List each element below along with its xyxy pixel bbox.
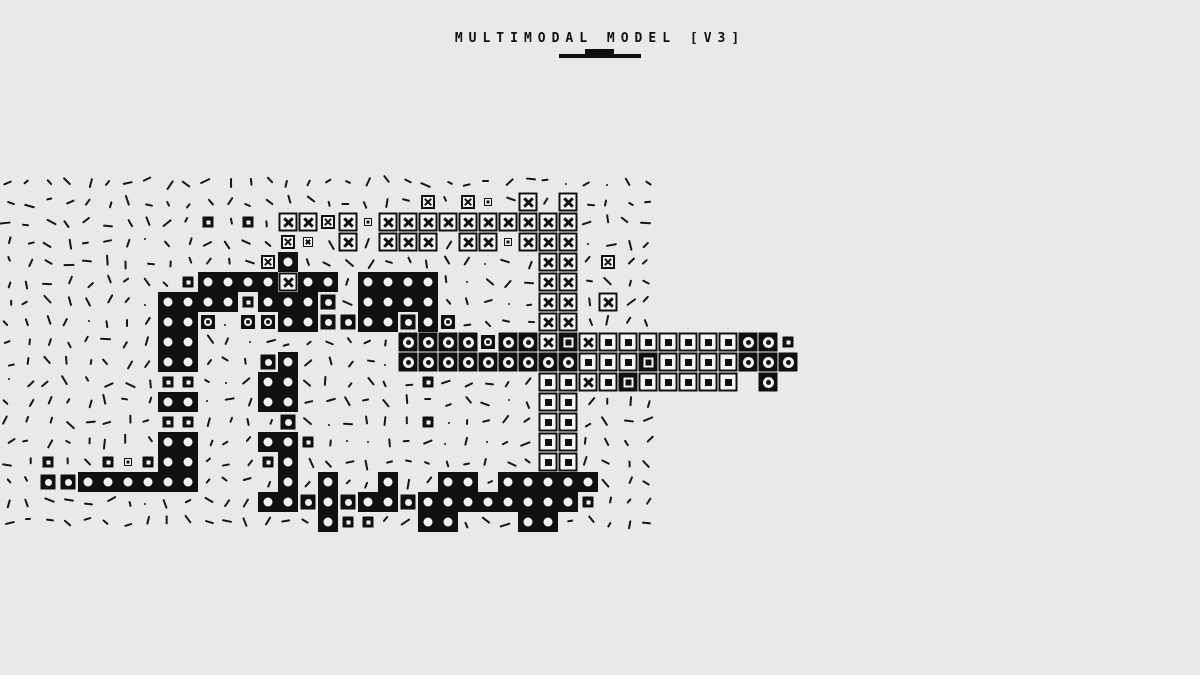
square-tile (719, 353, 738, 372)
dash-mark (265, 199, 274, 206)
dash-mark (142, 419, 150, 423)
dash-mark (103, 394, 107, 405)
dot-tile (178, 472, 198, 492)
dash-mark (85, 297, 92, 307)
dash-mark (202, 241, 212, 247)
dash-mark (326, 397, 336, 402)
dash-mark (582, 456, 587, 466)
dash-mark (507, 461, 517, 467)
dash-mark (227, 197, 234, 205)
dash-mark (24, 203, 35, 208)
dash-mark (621, 217, 630, 224)
dash-mark (365, 177, 371, 187)
dash-mark (7, 281, 11, 288)
square-tile (539, 413, 558, 432)
dash-mark (44, 497, 55, 503)
dash-mark (26, 357, 29, 365)
dash-mark (225, 382, 227, 384)
dash-mark (47, 315, 52, 325)
dash-mark (346, 460, 355, 464)
artwork-stage: MULTIMODAL MODEL [V3] (0, 0, 1200, 675)
dash-mark (465, 396, 473, 404)
x-mark-tile (559, 293, 578, 312)
x-mark-tile (559, 313, 578, 332)
dash-mark (329, 356, 333, 365)
dash-mark (245, 436, 251, 443)
mini-square-tile (183, 277, 194, 288)
pattern-canvas (0, 0, 1200, 675)
dash-mark (42, 283, 52, 285)
dash-mark (482, 419, 490, 423)
x-mark-tile (539, 213, 558, 232)
dash-mark (249, 341, 251, 343)
dash-mark (103, 438, 106, 449)
dash-mark (46, 219, 56, 226)
dash-mark (241, 239, 251, 245)
dash-mark (200, 178, 211, 184)
dash-mark (221, 356, 229, 362)
dot-tile (178, 292, 198, 312)
dash-mark (502, 319, 510, 323)
x-mark-tile (279, 213, 298, 232)
dash-mark (144, 304, 146, 306)
dash-mark (167, 180, 175, 190)
dash-mark (444, 275, 447, 283)
square-tile (539, 433, 558, 452)
dash-mark (46, 179, 52, 185)
dash-mark (345, 479, 351, 485)
ring-tile (499, 353, 518, 372)
micro-square-tile (484, 198, 492, 206)
dot-tile (378, 292, 398, 312)
dot-tile (378, 492, 398, 512)
dash-mark (101, 358, 108, 366)
dash-mark (629, 279, 633, 286)
square-tile (559, 433, 578, 452)
x-mark-tile (299, 213, 318, 232)
dash-mark (68, 296, 72, 306)
dash-mark (302, 379, 311, 387)
dash-mark (583, 437, 586, 446)
dash-mark (84, 502, 93, 505)
x-mark-tile-small (601, 255, 615, 269)
dash-mark (483, 458, 487, 466)
dash-mark (465, 418, 467, 424)
dash-mark (287, 194, 291, 203)
dash-mark (281, 519, 290, 522)
dash-mark (601, 479, 609, 488)
dash-mark (145, 203, 153, 207)
dash-mark (224, 337, 229, 345)
dash-mark (189, 237, 193, 245)
dash-mark (424, 398, 431, 400)
dot-tile (378, 472, 398, 492)
dash-mark (184, 514, 191, 523)
dash-mark (205, 457, 211, 463)
dash-mark (267, 480, 271, 487)
dash-mark (88, 437, 90, 444)
dash-mark (206, 257, 212, 264)
dash-mark (405, 394, 408, 404)
dash-mark (485, 320, 492, 327)
dash-mark (584, 256, 590, 263)
dash-mark (181, 180, 190, 187)
dash-mark (8, 378, 10, 380)
dash-mark (588, 297, 591, 306)
dash-mark (230, 218, 233, 225)
square-tile (619, 353, 638, 372)
dash-mark (485, 278, 494, 286)
dash-mark (222, 463, 230, 466)
dash-mark (123, 181, 133, 185)
dash-mark (163, 499, 168, 509)
dot-tile (478, 492, 498, 512)
square-tile (559, 373, 578, 392)
dash-mark (528, 261, 533, 270)
dot-tile (518, 472, 538, 492)
inverse-square-tile (639, 353, 658, 372)
dash-mark (362, 201, 367, 209)
dash-mark (528, 321, 535, 323)
x-mark-tile (599, 293, 618, 312)
dash-mark (325, 340, 334, 345)
dash-mark (463, 323, 472, 326)
dash-mark (221, 476, 228, 482)
dot-tile (358, 272, 378, 292)
dash-mark (244, 203, 251, 208)
dash-mark (464, 521, 469, 528)
dot-tile (258, 432, 278, 452)
dot-tile-small (321, 295, 336, 310)
dash-mark (462, 183, 470, 187)
dash-mark (21, 300, 28, 305)
dot-tile (458, 492, 478, 512)
ring-tile (459, 353, 478, 372)
dash-mark (362, 339, 370, 344)
dash-mark (28, 399, 34, 408)
dash-mark (148, 396, 152, 403)
dash-mark (346, 440, 348, 442)
x-mark-tile (559, 233, 578, 252)
dash-mark (65, 440, 72, 445)
dash-mark (304, 481, 311, 488)
dash-mark (623, 419, 634, 422)
dash-mark (126, 239, 131, 248)
dash-mark (106, 294, 113, 304)
x-mark-tile (539, 293, 558, 312)
dash-mark (61, 374, 68, 384)
dot-tile (258, 392, 278, 412)
dash-mark (582, 181, 590, 187)
dash-mark (587, 243, 589, 245)
dot-tile (418, 272, 438, 292)
dash-mark (464, 382, 473, 388)
dot-tile (238, 272, 258, 292)
mini-square-tile (243, 217, 254, 228)
dot-tile (218, 292, 238, 312)
dot-tile (498, 492, 518, 512)
dash-mark (465, 297, 469, 305)
dash-mark (166, 200, 171, 207)
dash-mark (523, 417, 531, 423)
dash-mark (345, 277, 349, 285)
dot-tile-small (261, 355, 276, 370)
x-mark-tile (399, 233, 418, 252)
dash-mark (7, 499, 12, 509)
dash-mark (6, 478, 12, 484)
dash-mark (382, 398, 390, 407)
dash-mark (229, 417, 233, 424)
dash-mark (68, 276, 73, 285)
dash-mark (606, 243, 617, 247)
dash-mark (301, 518, 309, 524)
dot-tile-small (321, 315, 336, 330)
dash-mark (524, 458, 531, 464)
x-mark-tile (519, 193, 538, 212)
x-mark-tile (519, 233, 538, 252)
dash-mark (500, 522, 511, 527)
dot-tile (558, 472, 578, 492)
dash-mark (328, 200, 331, 207)
dash-mark (628, 202, 634, 207)
ring-tile (499, 333, 518, 352)
dash-mark (23, 179, 29, 184)
dash-mark (266, 176, 273, 183)
dash-mark (242, 517, 247, 527)
dot-tile-small (301, 495, 316, 510)
dot-tile (118, 472, 138, 492)
dash-mark (142, 176, 151, 181)
ring-tile (559, 353, 578, 372)
dash-mark (145, 317, 152, 326)
square-tile (559, 413, 578, 432)
square-tile (639, 373, 658, 392)
x-mark-tile (479, 213, 498, 232)
dash-mark (162, 219, 171, 227)
dash-mark (401, 198, 409, 202)
dash-mark (22, 439, 28, 442)
dash-mark (228, 258, 231, 265)
dot-tile-small (401, 495, 416, 510)
dash-mark (626, 298, 636, 306)
x-mark-tile (539, 253, 558, 272)
dash-mark (125, 261, 127, 270)
dash-mark (247, 459, 254, 467)
dash-mark (639, 222, 650, 225)
dash-mark (384, 339, 387, 346)
dash-mark (143, 277, 151, 286)
dash-mark (642, 279, 650, 284)
dot-tile (178, 352, 198, 372)
dash-mark (367, 360, 376, 363)
square-tile (559, 393, 578, 412)
square-tile (679, 353, 698, 372)
dot-tile (438, 472, 458, 492)
dash-mark (102, 519, 108, 525)
x-mark-tile-small (261, 255, 275, 269)
x-mark-tile (499, 213, 518, 232)
dash-mark (2, 415, 8, 425)
dash-mark (464, 256, 471, 265)
ring-tile (739, 353, 758, 372)
dash-mark (265, 516, 272, 526)
dash-mark (524, 281, 534, 284)
dash-mark (486, 441, 488, 443)
dot-tile (558, 492, 578, 512)
dot-tile (538, 492, 558, 512)
dash-mark (0, 221, 11, 224)
ring-tile (759, 353, 778, 372)
dash-mark (264, 240, 272, 247)
inverse-square-tile (619, 373, 638, 392)
dash-mark (384, 364, 386, 366)
x-mark-tile (279, 273, 298, 292)
x-mark-tile (479, 233, 498, 252)
dash-mark (147, 263, 155, 266)
dash-mark (250, 178, 253, 187)
dash-mark (384, 416, 387, 426)
dot-tile-small (61, 475, 76, 490)
dash-mark (385, 197, 389, 207)
square-tile (679, 333, 698, 352)
square-tile (599, 333, 618, 352)
dash-mark (306, 179, 311, 186)
dash-mark (245, 260, 255, 265)
dash-mark (144, 359, 151, 367)
x-mark-tile (419, 233, 438, 252)
dash-mark (45, 519, 53, 522)
dash-mark (362, 398, 369, 401)
dash-mark (643, 296, 650, 303)
dash-mark (66, 199, 75, 204)
dash-mark (44, 259, 53, 265)
dash-mark (124, 297, 130, 303)
ring-tile (759, 373, 778, 392)
mini-square-tile (243, 297, 254, 308)
dash-mark (603, 277, 612, 286)
dash-mark (225, 397, 235, 401)
dash-mark (303, 359, 312, 367)
dash-mark (204, 378, 210, 383)
dash-mark (325, 460, 332, 468)
dash-mark (145, 336, 150, 346)
mini-square-tile (163, 417, 174, 428)
dot-tile (538, 472, 558, 492)
x-mark-tile-small (421, 195, 435, 209)
dash-mark (209, 439, 213, 446)
dash-mark (3, 180, 12, 185)
dot-tile (258, 372, 278, 392)
dash-mark (67, 341, 72, 348)
dash-mark (426, 476, 433, 484)
dash-mark (542, 179, 549, 182)
dot-tile (518, 512, 538, 532)
dash-mark (49, 416, 53, 423)
mini-square-tile (363, 517, 374, 528)
dash-mark (367, 441, 369, 443)
dash-mark (601, 416, 609, 426)
dash-mark (588, 515, 595, 523)
dash-mark (525, 377, 532, 385)
ring-tile (519, 333, 538, 352)
ring-tile (439, 333, 458, 352)
dash-mark (105, 320, 108, 328)
dot-tile (298, 292, 318, 312)
mini-square-tile (423, 377, 434, 388)
x-mark-tile (559, 213, 578, 232)
mini-square-tile (43, 457, 54, 468)
dash-mark (587, 396, 595, 405)
dash-mark (46, 197, 53, 200)
dash-mark (642, 480, 650, 486)
dash-mark (525, 401, 530, 409)
micro-square-tile (364, 218, 372, 226)
dash-mark (28, 242, 35, 246)
dash-mark (508, 399, 510, 401)
dash-mark (565, 183, 567, 185)
dash-mark (188, 256, 192, 263)
dash-mark (123, 277, 129, 282)
dash-mark (364, 481, 368, 488)
dash-mark (82, 242, 89, 245)
dot-tile (278, 432, 298, 452)
dash-mark (25, 416, 29, 423)
dash-mark (4, 520, 14, 524)
square-tile (719, 373, 738, 392)
dash-mark (230, 178, 232, 188)
square-tile (599, 353, 618, 372)
dot-tile-small (401, 315, 416, 330)
ring-tile (419, 353, 438, 372)
dot-tile-small (281, 415, 296, 430)
dash-mark (2, 399, 8, 405)
dash-mark (642, 522, 651, 525)
dot-tile (278, 472, 298, 492)
dash-mark (329, 440, 332, 447)
dash-mark (28, 259, 34, 268)
dash-mark (144, 503, 146, 505)
dash-mark (325, 178, 332, 183)
dash-mark (383, 175, 390, 183)
square-tile (679, 373, 698, 392)
dash-mark (306, 195, 315, 203)
dash-mark (103, 239, 112, 243)
dot-tile (138, 472, 158, 492)
dash-mark (169, 261, 171, 268)
dash-mark (27, 380, 35, 388)
dot-tile (158, 432, 178, 452)
dash-mark (10, 299, 12, 305)
ring-tile (779, 353, 798, 372)
dot-tile (398, 272, 418, 292)
dash-mark (626, 498, 631, 504)
dash-mark (100, 337, 111, 340)
dash-mark (146, 515, 150, 524)
dash-mark (502, 415, 509, 424)
dash-mark (7, 437, 16, 444)
x-mark-tile (399, 213, 418, 232)
dash-mark (224, 240, 231, 249)
dash-mark (567, 519, 573, 522)
dash-mark (424, 461, 430, 465)
dash-mark (25, 517, 31, 519)
x-mark-tile (539, 273, 558, 292)
dash-mark (125, 381, 135, 387)
dot-tile (298, 312, 318, 332)
dash-mark (382, 515, 388, 522)
dash-mark (344, 259, 354, 268)
dot-tile (278, 372, 298, 392)
